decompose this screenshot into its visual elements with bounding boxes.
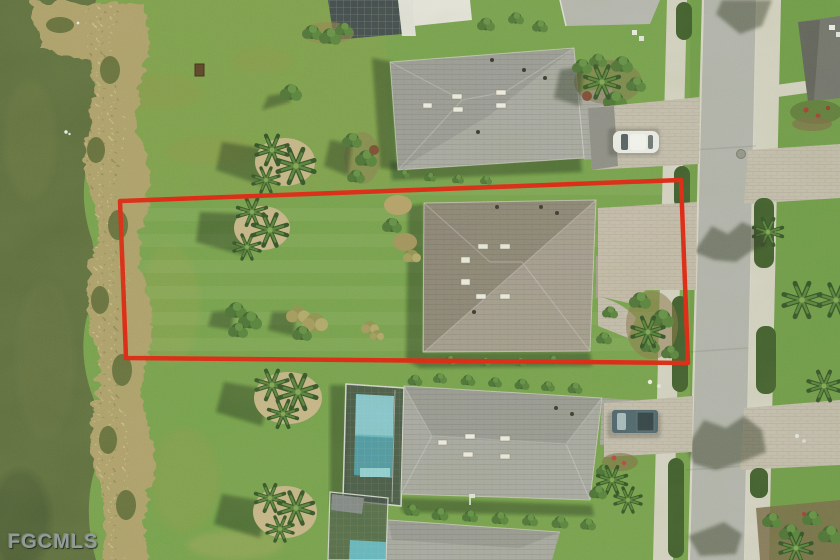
film-grain bbox=[0, 0, 840, 560]
aerial-scene bbox=[0, 0, 840, 560]
mls-watermark: FGCMLS bbox=[8, 531, 98, 554]
aerial-listing-photo: FGCMLS bbox=[0, 0, 840, 560]
